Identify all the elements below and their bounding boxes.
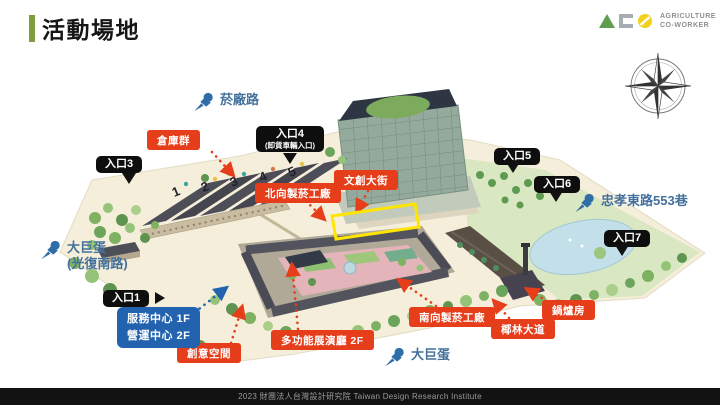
entrance-1-pointer-icon [155, 292, 165, 304]
aco-logo-icon [597, 10, 655, 32]
entrance-3-pointer-icon [122, 173, 136, 184]
road-label-dome-guangfu: 大巨蛋 (光復南路) [40, 240, 128, 273]
logo-text: AGRICULTURE CO-WORKER [660, 12, 716, 31]
logo-text-line1: AGRICULTURE [660, 12, 716, 21]
road-label-text: 忠孝東路553巷 [601, 193, 688, 209]
road-label-yanchang: 菸廠路 [193, 92, 259, 113]
venue-label-south-tobacco-factory: 南向製菸工廠 [409, 307, 495, 327]
page-title-block: 活動場地 [29, 11, 140, 45]
venue-label-boiler-room: 鍋爐房 [542, 300, 595, 320]
entrance-5-pointer-icon [506, 162, 520, 173]
footer-bar: 2023 財團法人台灣設計研究院 Taiwan Design Research … [0, 388, 720, 405]
road-label-line2: (光復南路) [67, 256, 128, 272]
entrance-1-label: 入口1 [103, 290, 149, 307]
page-title: 活動場地 [42, 11, 140, 45]
road-label-text: 大巨蛋 (光復南路) [67, 240, 128, 273]
venue-label-palm-avenue: 椰林大道 [491, 319, 555, 339]
road-label-text: 菸廠路 [220, 92, 259, 108]
entrance-3-label: 入口3 [96, 156, 142, 173]
map-pin-icon [193, 91, 215, 113]
footer-text: 2023 財團法人台灣設計研究院 Taiwan Design Research … [238, 391, 482, 402]
service-center-line2: 營運中心 2F [127, 328, 190, 345]
road-label-text: 大巨蛋 [411, 347, 450, 363]
entrance-4-label: 入口4 (卸貨車輛入口) [256, 126, 324, 152]
venue-label-warehouse-cluster: 倉庫群 [147, 130, 200, 150]
entrance-6-pointer-icon [549, 191, 563, 202]
service-center-line1: 服務中心 1F [127, 311, 190, 328]
entrance-7-pointer-icon [615, 245, 629, 256]
venue-label-multifunction-hall: 多功能展演廳 2F [271, 330, 374, 350]
brand-logo: AGRICULTURE CO-WORKER [597, 10, 716, 32]
entrance-4-sub-text: (卸貨車輛入口) [265, 141, 315, 150]
entrance-4-label-text: 入口4 [276, 128, 304, 140]
service-center-label: 服務中心 1F 營運中心 2F [117, 307, 200, 348]
title-accent-bar [29, 15, 35, 42]
road-label-zhongxiao553: 忠孝東路553巷 [574, 193, 688, 214]
road-label-line1: 大巨蛋 [67, 240, 128, 256]
map-pin-icon [574, 192, 596, 214]
road-label-dome: 大巨蛋 [384, 347, 450, 368]
logo-text-line2: CO-WORKER [660, 21, 716, 30]
venue-label-creative-street: 文創大街 [334, 170, 398, 190]
venue-label-north-tobacco-factory: 北向製菸工廠 [255, 183, 341, 203]
compass-rose-icon [622, 50, 694, 122]
map-pin-icon [40, 239, 62, 261]
slide: 1 2 3 4 5 [0, 0, 720, 405]
entrance-4-pointer-icon [283, 153, 297, 164]
map-pin-icon [384, 346, 406, 368]
